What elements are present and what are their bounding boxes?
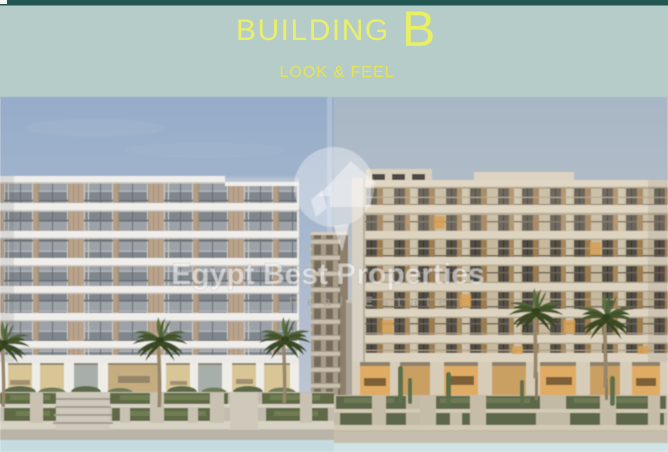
svg-text:BUILDING: BUILDING (236, 14, 390, 47)
svg-text:Egypt Best Properties: Egypt Best Properties (171, 258, 484, 291)
svg-text:Real Estate: Real Estate (289, 294, 455, 309)
svg-text:B: B (402, 1, 435, 57)
svg-text:LOOK & FEEL: LOOK & FEEL (279, 64, 394, 81)
